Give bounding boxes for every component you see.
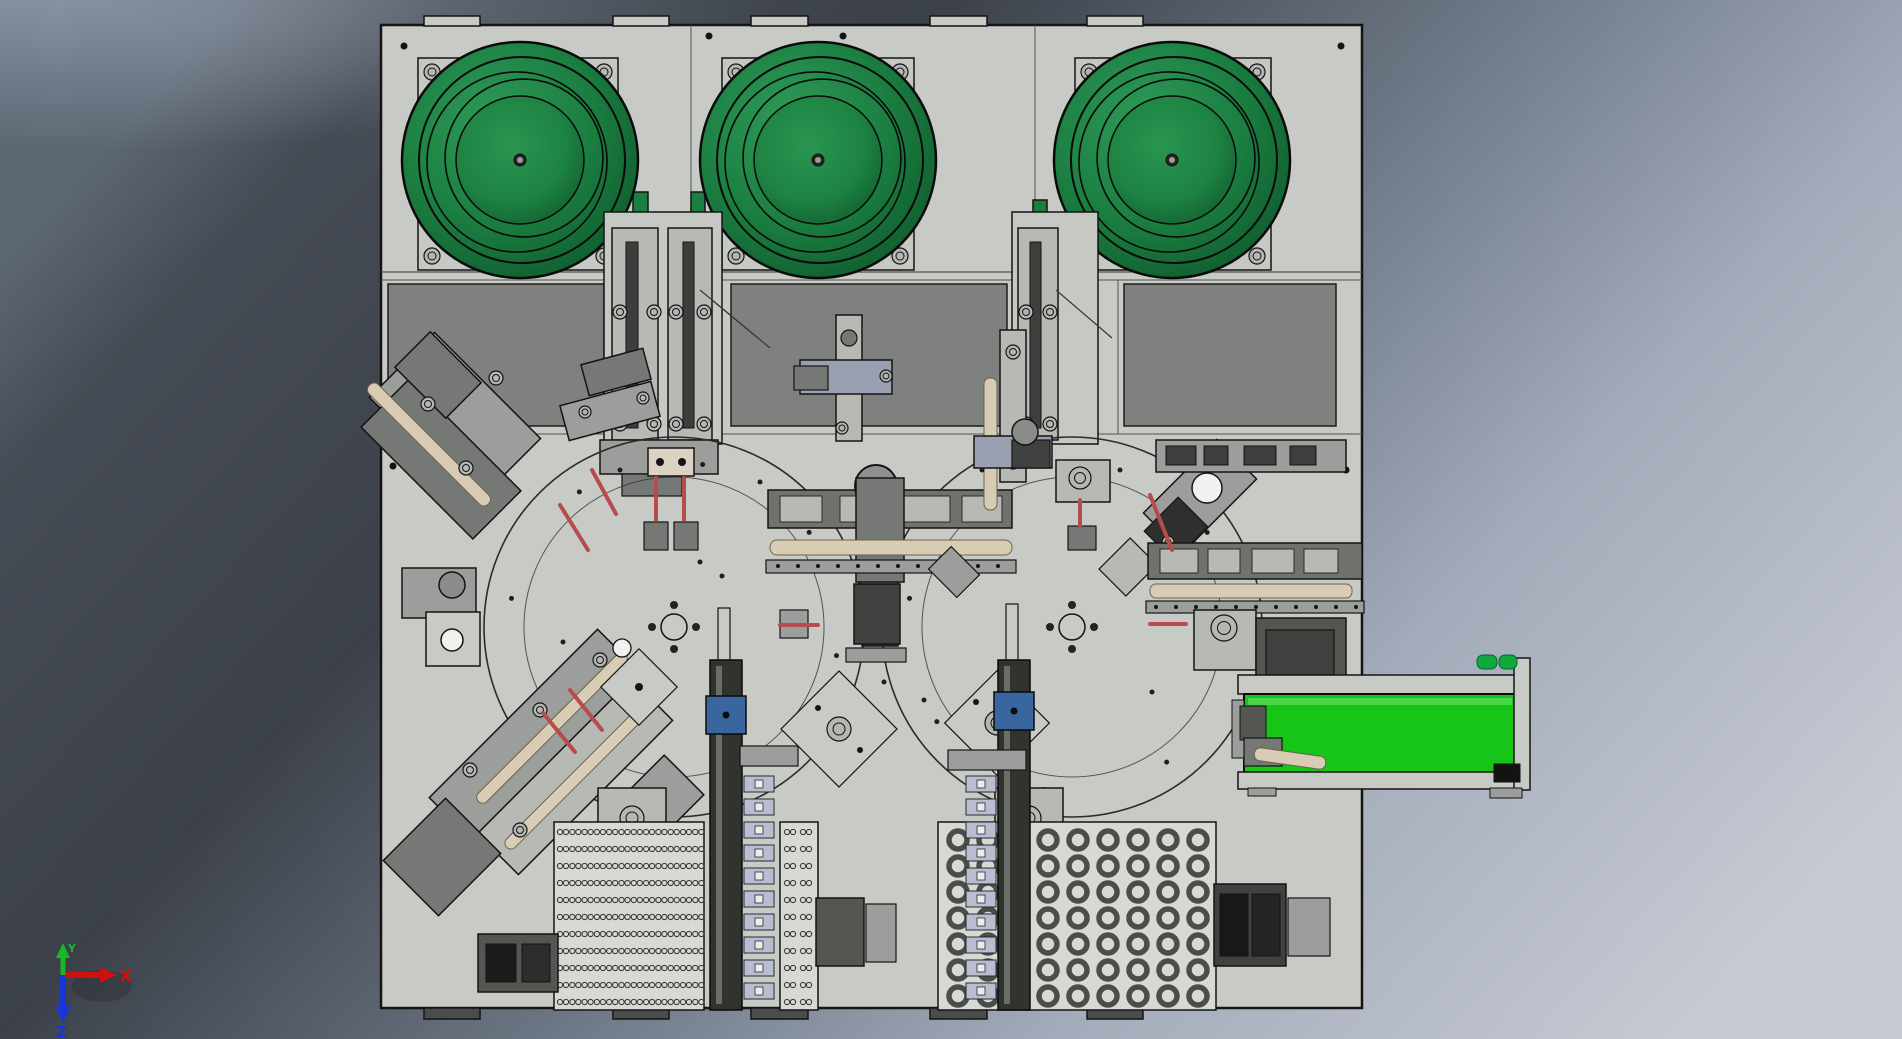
belt-conveyor[interactable] xyxy=(1232,655,1530,798)
x-axis-label: X xyxy=(120,967,132,985)
z-axis-label: Z xyxy=(56,1023,67,1039)
machine-assembly xyxy=(361,16,1530,1019)
cad-viewport: X Y Z xyxy=(0,0,1902,1039)
cad-scene: X Y Z xyxy=(0,0,1902,1039)
bowl-feeder-2[interactable] xyxy=(691,42,936,280)
y-axis-label: Y xyxy=(67,942,77,955)
